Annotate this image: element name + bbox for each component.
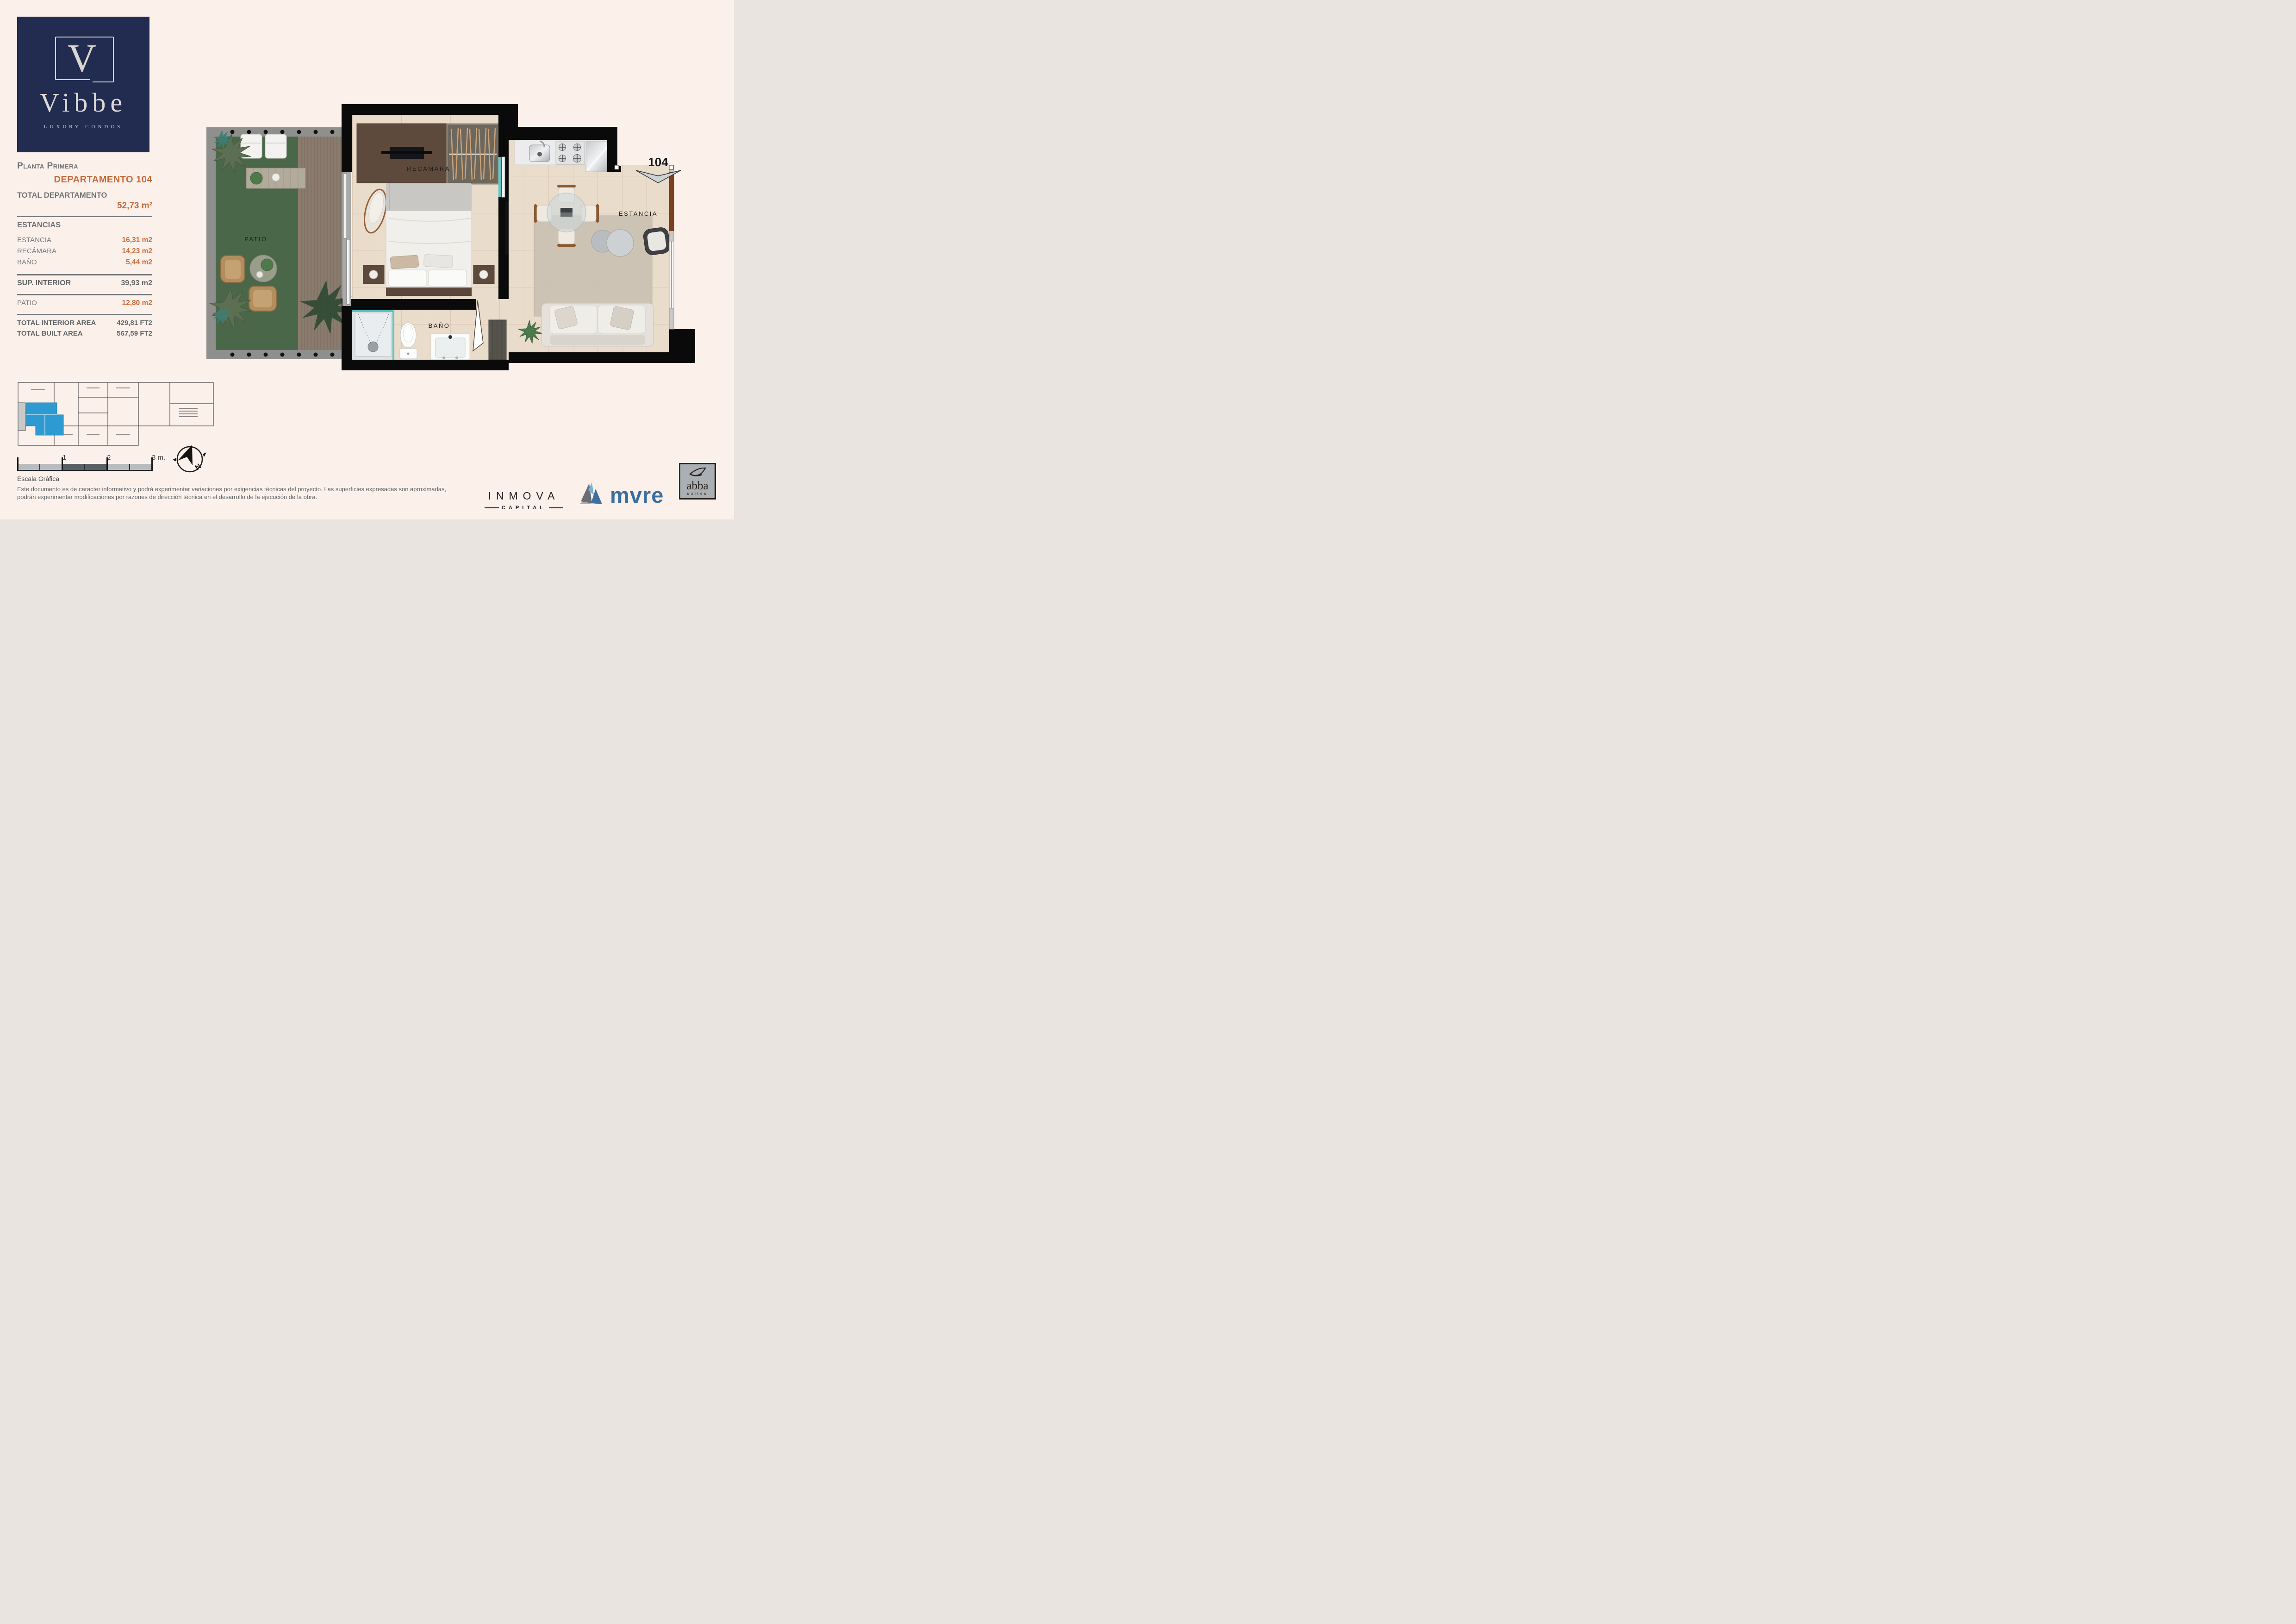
disclaimer-line1: Este documento es de caracter informativ… bbox=[17, 485, 471, 493]
patio-sliding-door bbox=[342, 172, 351, 306]
abba-sub: suites bbox=[680, 492, 715, 496]
key-plan bbox=[17, 376, 215, 451]
floor-plan: PATIO bbox=[205, 102, 697, 372]
logo-initial: V bbox=[68, 36, 96, 80]
room-label: ESTANCIA bbox=[17, 236, 51, 244]
total-built-row: TOTAL BUILT AREA 567,59 FT2 bbox=[17, 330, 152, 337]
vanity-sink bbox=[431, 334, 470, 360]
toilet bbox=[400, 323, 417, 359]
scale-caption: Escala Gráfica bbox=[17, 475, 59, 482]
pillow bbox=[390, 255, 419, 269]
mvre-mountain-icon bbox=[579, 482, 606, 505]
bed-throw bbox=[386, 183, 472, 210]
unit-number: 104 bbox=[648, 155, 668, 169]
accent-chair bbox=[642, 227, 671, 256]
dash bbox=[549, 507, 563, 508]
patio-row: PATIO 12,80 m2 bbox=[17, 299, 152, 307]
laptop bbox=[560, 208, 572, 217]
total-departamento-label: TOTAL DEPARTAMENTO bbox=[17, 191, 152, 200]
inmova-sub: CAPITAL bbox=[502, 505, 546, 511]
inmova-logo: INMOVA CAPITAL bbox=[485, 490, 563, 511]
bed bbox=[386, 183, 472, 296]
unit-data-panel: Planta Primera DEPARTAMENTO 104 TOTAL DE… bbox=[17, 161, 152, 337]
patio-value: 12,80 m2 bbox=[122, 299, 153, 307]
room-label: RECÁMARA bbox=[17, 247, 56, 255]
total-interior-label: TOTAL INTERIOR AREA bbox=[17, 319, 96, 327]
shower bbox=[352, 310, 394, 360]
room-row-recamara: RECÁMARA 14,23 m2 bbox=[17, 247, 152, 256]
total-interior-value: 429,81 FT2 bbox=[117, 319, 152, 327]
patio-table bbox=[246, 168, 305, 188]
inmova-name: INMOVA bbox=[485, 490, 563, 502]
sofa bbox=[541, 303, 653, 347]
rug bbox=[534, 216, 652, 316]
disclaimer-line2: podrán experimentar modificaciones por r… bbox=[17, 493, 471, 501]
sup-interior-label: SUP. INTERIOR bbox=[17, 279, 71, 287]
divider bbox=[17, 274, 152, 275]
mvre-logo: mvre bbox=[579, 482, 664, 505]
total-departamento-value: 52,73 m² bbox=[17, 201, 152, 211]
divider bbox=[17, 294, 152, 295]
scale-tick-label: 3 m. bbox=[152, 454, 165, 462]
rooms-heading: ESTANCIAS bbox=[17, 221, 152, 230]
room-row-bano: BAÑO 5,44 m2 bbox=[17, 258, 152, 267]
sofa-pillow bbox=[610, 306, 634, 330]
total-built-value: 567,59 FT2 bbox=[117, 330, 152, 337]
room-label: BAÑO bbox=[17, 258, 37, 266]
patio-rug bbox=[250, 255, 277, 282]
bathroom-cabinet bbox=[489, 320, 506, 360]
room-value: 14,23 m2 bbox=[122, 247, 153, 256]
abba-leaf-icon bbox=[688, 467, 707, 478]
total-interior-row: TOTAL INTERIOR AREA 429,81 FT2 bbox=[17, 319, 152, 327]
mvre-name: mvre bbox=[610, 486, 664, 505]
scale-tick-label: 1 bbox=[62, 454, 66, 462]
patio-area: PATIO bbox=[206, 127, 354, 359]
scale-bar: 1 2 3 m. Escala Gráfica bbox=[17, 454, 174, 481]
stove bbox=[556, 141, 585, 164]
wall-tv bbox=[505, 201, 509, 255]
north-arrow-icon: N bbox=[172, 442, 208, 478]
abba-name: abba bbox=[680, 481, 715, 491]
pillow bbox=[423, 254, 453, 268]
sup-interior-row: SUP. INTERIOR 39,93 m2 bbox=[17, 279, 152, 287]
closet bbox=[447, 124, 498, 184]
pillow bbox=[429, 270, 467, 287]
total-built-label: TOTAL BUILT AREA bbox=[17, 330, 83, 337]
sup-interior-value: 39,93 m2 bbox=[121, 279, 152, 287]
living-room-label: ESTANCIA bbox=[619, 210, 658, 217]
coffee-table bbox=[607, 230, 634, 256]
disclaimer: Este documento es de caracter informativ… bbox=[17, 485, 471, 501]
bedroom-room-label: RECÁMARA bbox=[407, 165, 450, 172]
logo-name: Vibbe bbox=[17, 87, 149, 118]
patio-label: PATIO bbox=[17, 299, 37, 307]
unit-title: DEPARTAMENTO 104 bbox=[17, 175, 152, 185]
vibbe-monogram-icon: V bbox=[17, 17, 149, 86]
room-value: 16,31 m2 bbox=[122, 236, 153, 244]
dash bbox=[485, 507, 499, 508]
pillow bbox=[389, 270, 427, 287]
vibbe-logo: V Vibbe LUXURY CONDOS bbox=[17, 17, 149, 152]
abba-logo: abba suites bbox=[679, 463, 716, 500]
divider bbox=[17, 314, 152, 315]
floorplan-sheet: V Vibbe LUXURY CONDOS Planta Primera DEP… bbox=[0, 0, 734, 519]
glass-door bbox=[498, 157, 505, 197]
logo-tagline: LUXURY CONDOS bbox=[17, 124, 149, 130]
headboard bbox=[386, 287, 472, 296]
entry-door bbox=[669, 172, 674, 231]
bathroom-room-label: BAÑO bbox=[429, 322, 450, 329]
floor-title: Planta Primera bbox=[17, 161, 152, 171]
room-value: 5,44 m2 bbox=[126, 258, 152, 267]
patio-room-label: PATIO bbox=[244, 236, 268, 243]
room-row-estancia: ESTANCIA 16,31 m2 bbox=[17, 236, 152, 244]
divider bbox=[17, 216, 152, 217]
